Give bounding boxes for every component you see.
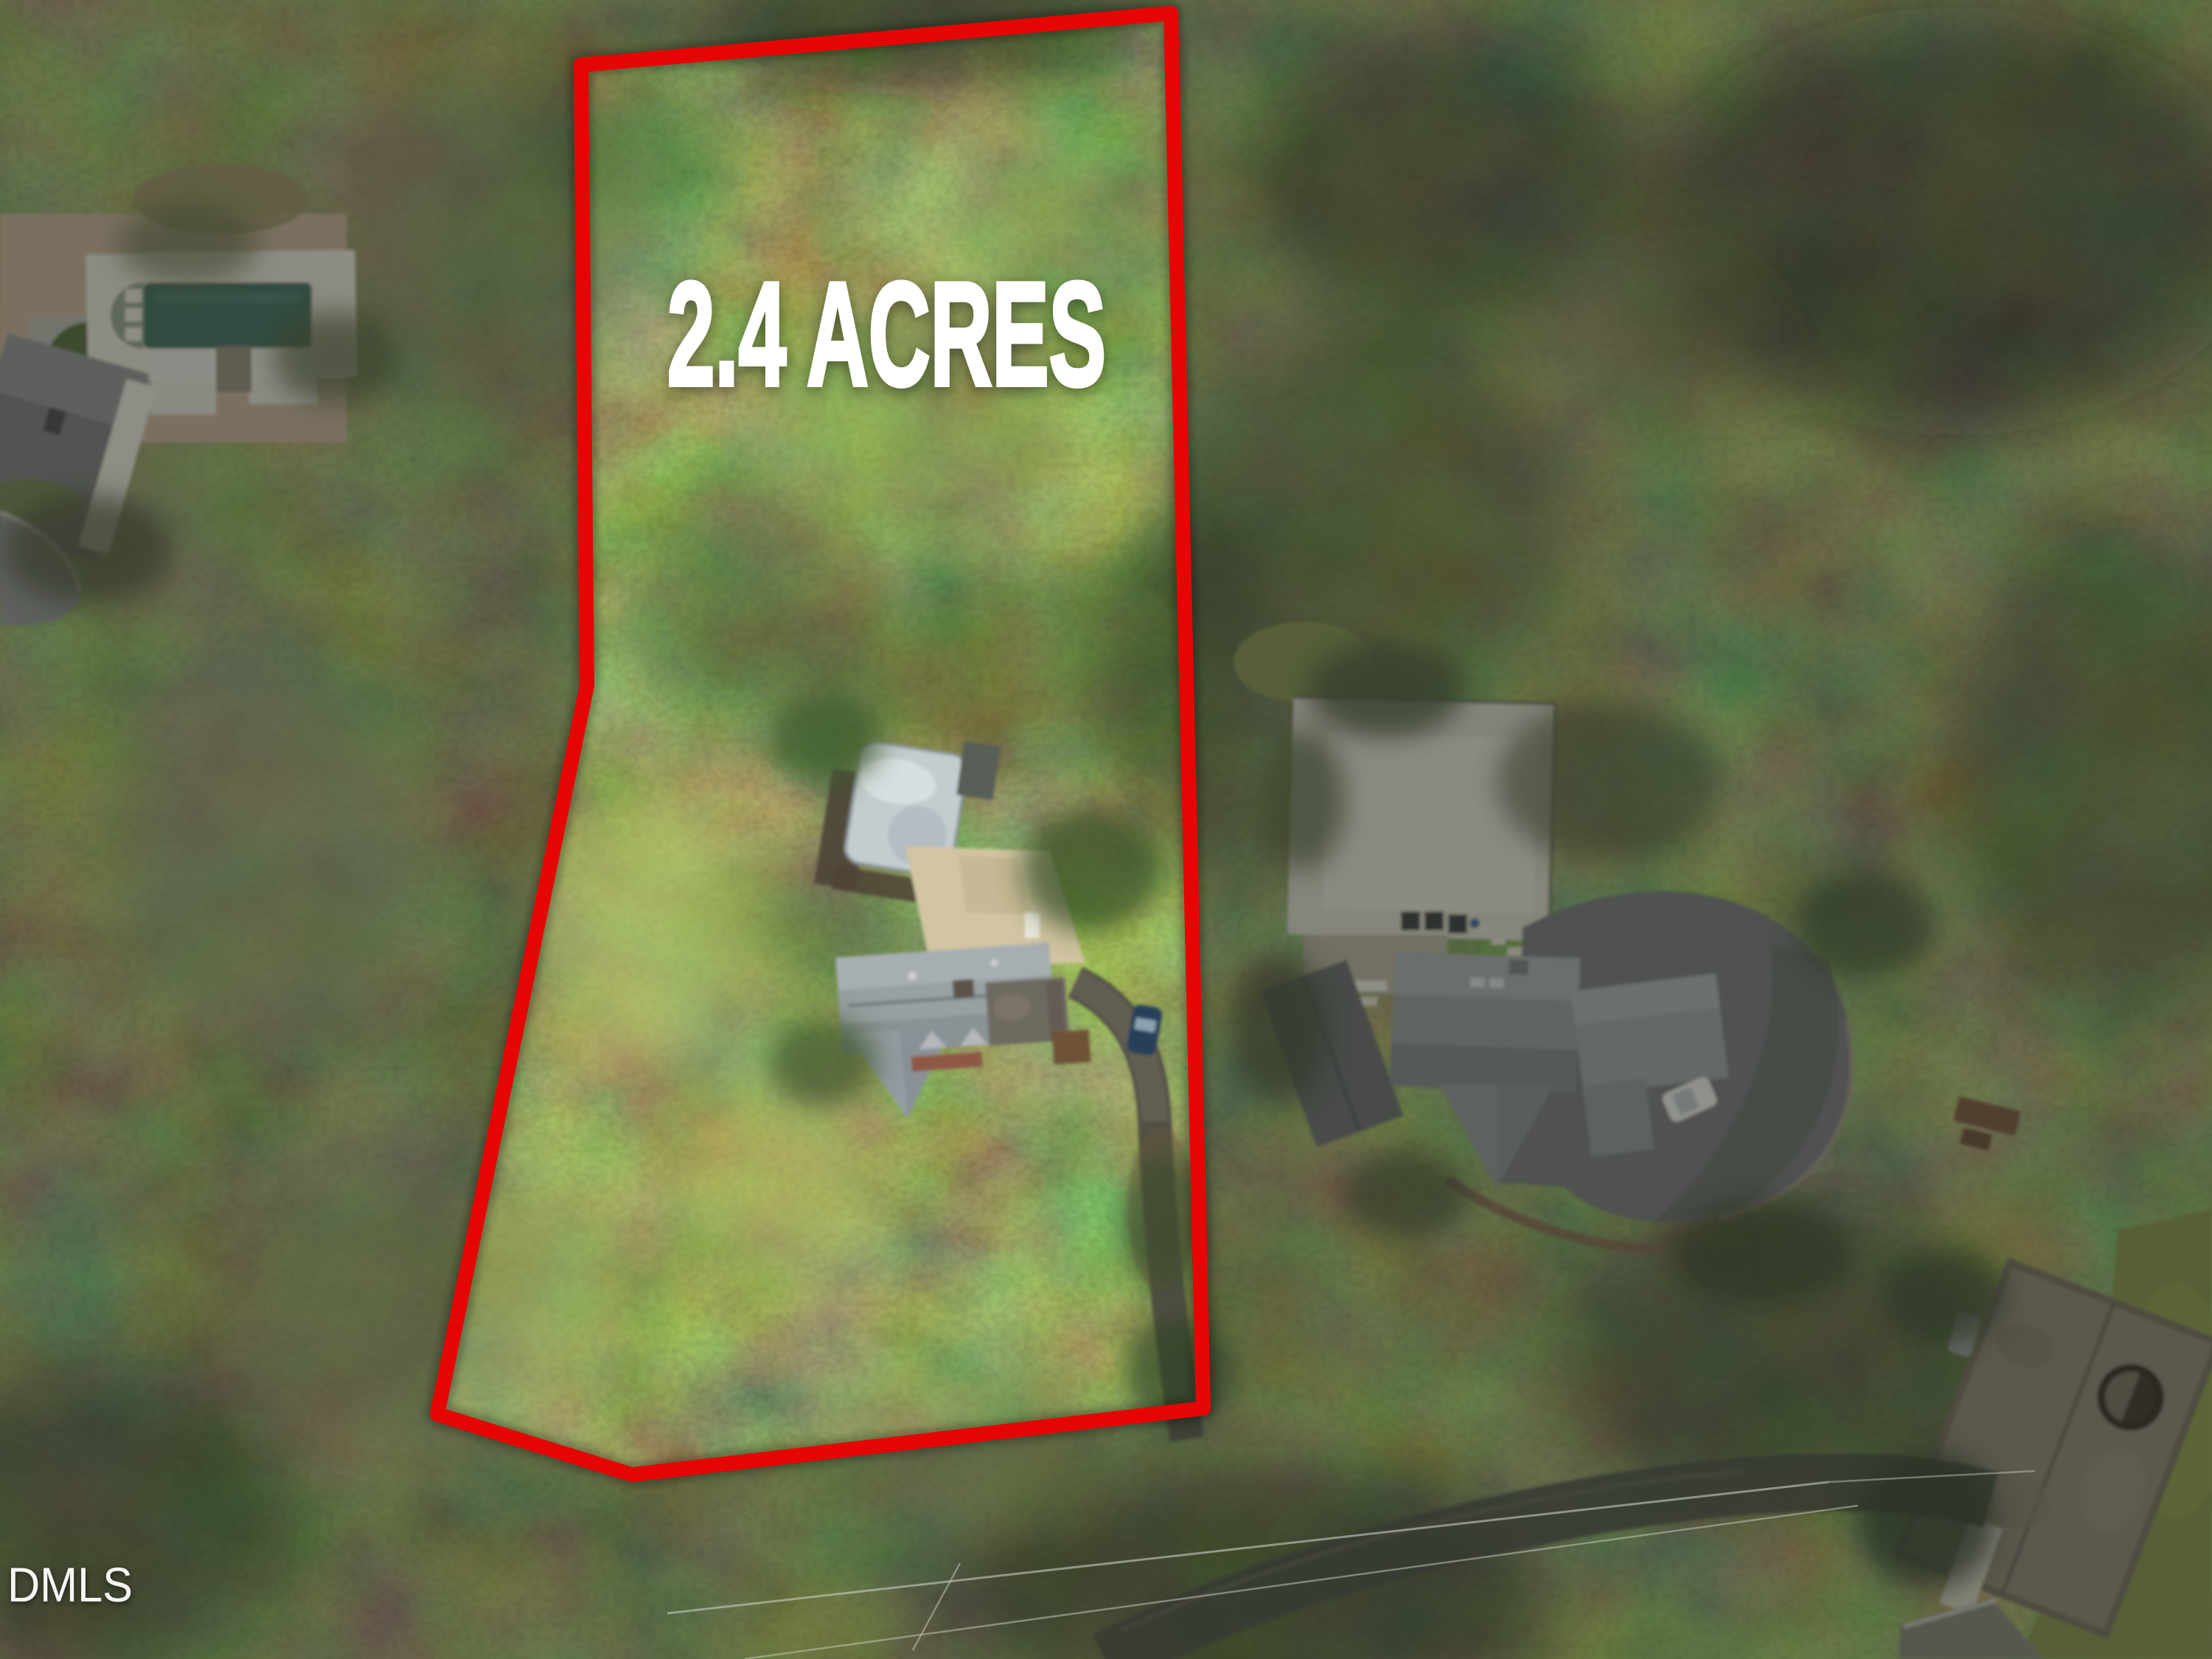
rear-deck bbox=[1052, 1029, 1091, 1064]
garden-shed-roof bbox=[956, 741, 1001, 800]
patio-table bbox=[1025, 913, 1040, 938]
aerial-photo: 2.4 ACRES DMLS bbox=[0, 0, 2212, 1659]
aerial-photo-stage: 2.4 ACRES DMLS bbox=[0, 0, 2212, 1659]
mls-watermark: DMLS bbox=[7, 1557, 133, 1612]
chimney bbox=[953, 979, 975, 998]
acreage-label: 2.4 ACRES bbox=[667, 252, 1106, 417]
